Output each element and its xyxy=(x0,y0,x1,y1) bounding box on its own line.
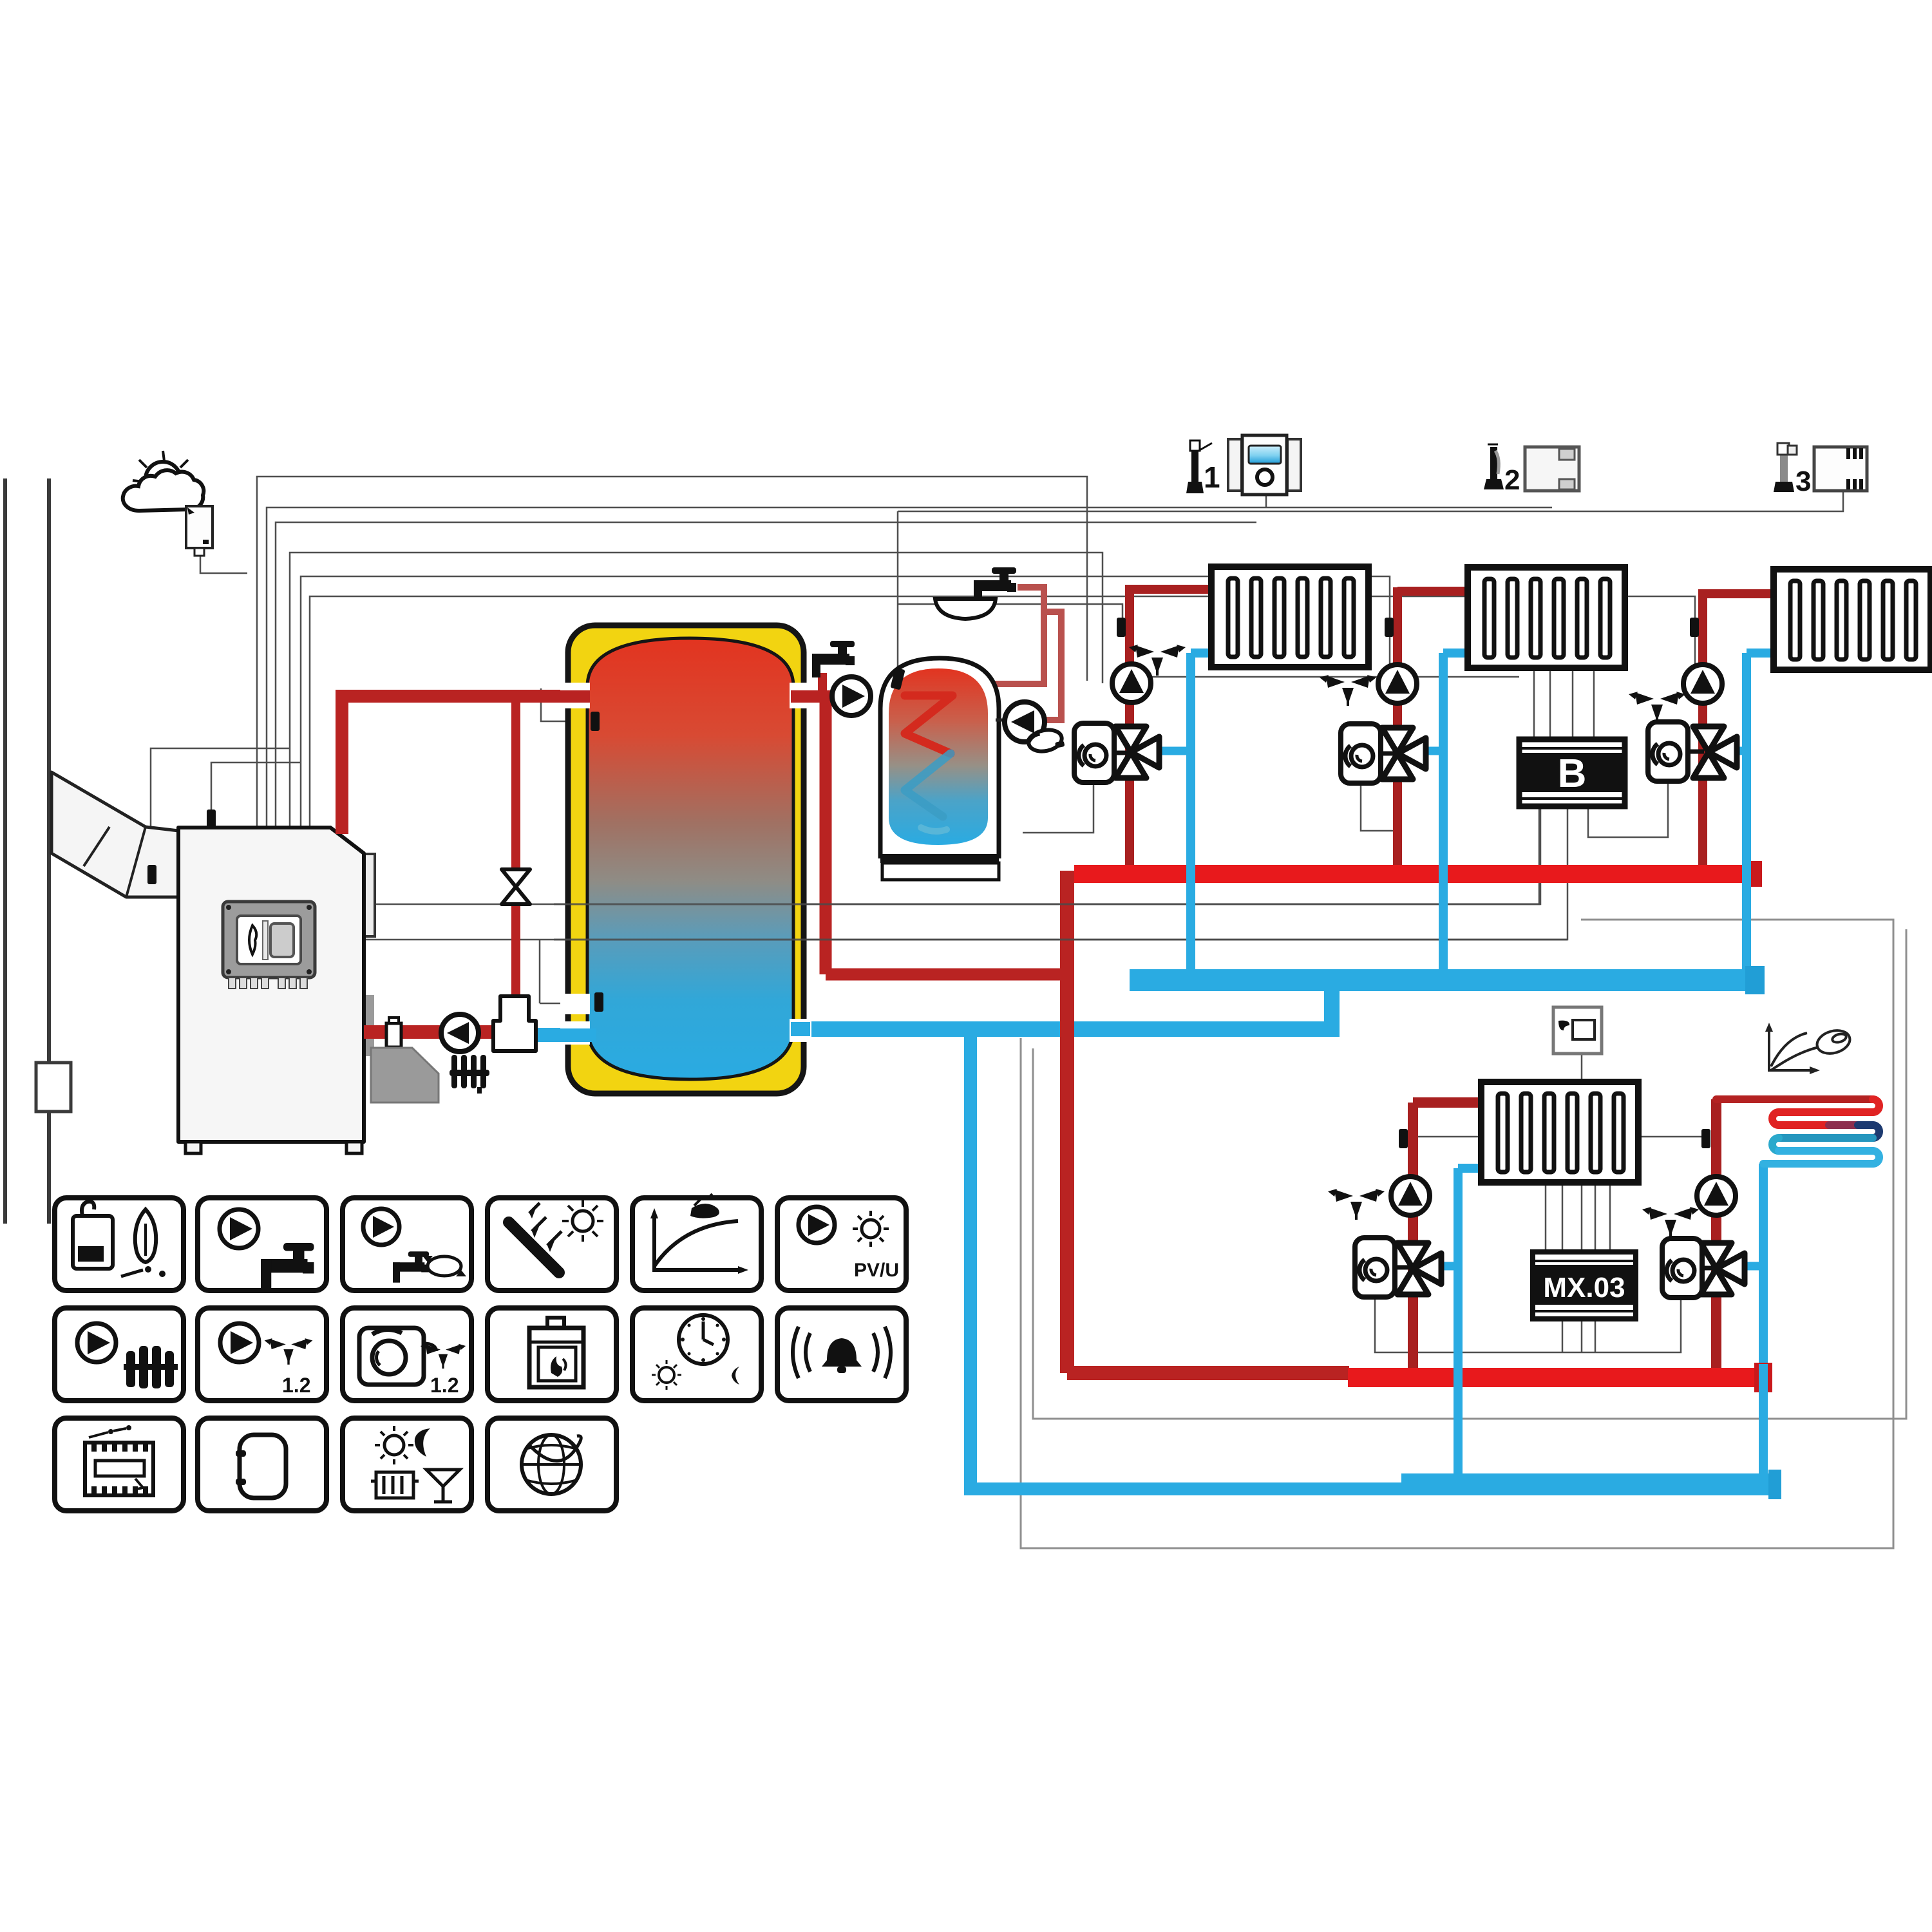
svg-text:1: 1 xyxy=(1204,460,1220,494)
svg-text:1.2: 1.2 xyxy=(430,1374,459,1397)
svg-text:PV/U: PV/U xyxy=(854,1260,899,1281)
svg-text:MX.03: MX.03 xyxy=(1543,1272,1625,1303)
svg-text:1.2: 1.2 xyxy=(282,1374,310,1397)
svg-text:3: 3 xyxy=(1795,466,1811,497)
svg-text:2: 2 xyxy=(1504,464,1520,496)
svg-text:B: B xyxy=(1558,752,1587,796)
